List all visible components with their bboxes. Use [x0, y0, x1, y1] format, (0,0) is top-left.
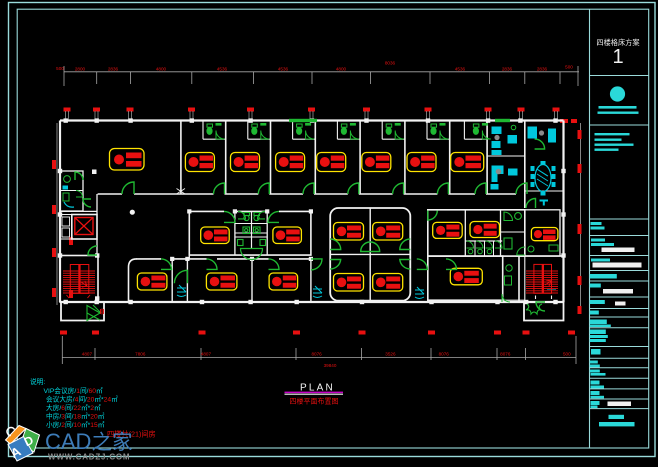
- svg-text:8076: 8076: [311, 351, 322, 356]
- svg-text:3526: 3526: [385, 351, 396, 356]
- svg-text:8036: 8036: [385, 61, 396, 66]
- svg-text:WWW.CADZJ.COM: WWW.CADZJ.COM: [48, 453, 130, 462]
- svg-text:CAD之家: CAD之家: [45, 429, 132, 454]
- svg-text:4536: 4536: [455, 67, 466, 72]
- svg-text:2836: 2836: [502, 67, 513, 72]
- svg-text:4800: 4800: [336, 67, 347, 72]
- svg-text:7806: 7806: [135, 351, 146, 356]
- svg-text:8076: 8076: [439, 351, 450, 356]
- svg-text:500: 500: [563, 351, 571, 356]
- svg-text:大房/6间/22㎡*2㎡: 大房/6间/22㎡*2㎡: [46, 403, 101, 412]
- svg-text:4807: 4807: [201, 351, 212, 356]
- svg-text:39840: 39840: [324, 363, 337, 368]
- svg-text:4800: 4800: [156, 67, 167, 72]
- svg-text:500: 500: [56, 66, 64, 71]
- svg-text:四楼平面布置图: 四楼平面布置图: [290, 397, 339, 406]
- svg-text:500: 500: [565, 65, 573, 70]
- svg-text:4536: 4536: [278, 67, 289, 72]
- svg-text:会议大房/4间/20㎡*24㎡: 会议大房/4间/20㎡*24㎡: [46, 394, 118, 403]
- svg-text:小房/2间/10㎡*15㎡: 小房/2间/10㎡*15㎡: [46, 420, 105, 429]
- svg-text:1: 1: [612, 46, 623, 68]
- svg-text:8076: 8076: [500, 351, 511, 356]
- svg-text:2836: 2836: [108, 67, 119, 72]
- svg-text:VIP会议房/1间/60㎡: VIP会议房/1间/60㎡: [44, 386, 103, 395]
- svg-text:4807: 4807: [82, 351, 93, 356]
- svg-text:4536: 4536: [217, 67, 228, 72]
- svg-text:2836: 2836: [537, 67, 548, 72]
- svg-text:2800: 2800: [75, 67, 86, 72]
- svg-text:中房/3间/18㎡*20㎡: 中房/3间/18㎡*20㎡: [46, 411, 105, 420]
- svg-text:说明:: 说明:: [30, 377, 45, 386]
